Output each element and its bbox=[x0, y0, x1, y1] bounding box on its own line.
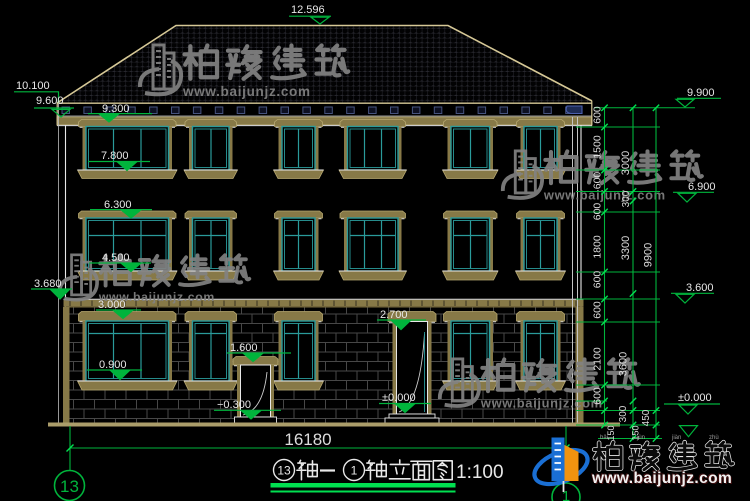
svg-text:−0.300: −0.300 bbox=[217, 399, 251, 411]
svg-text:12.596: 12.596 bbox=[291, 4, 325, 16]
svg-text:600: 600 bbox=[592, 301, 604, 319]
svg-text:www.baijunjz.com: www.baijunjz.com bbox=[591, 470, 732, 487]
svg-text:3.600: 3.600 bbox=[686, 282, 714, 294]
svg-text:bǎi: bǎi bbox=[600, 435, 608, 441]
svg-text:zhù: zhù bbox=[709, 435, 719, 441]
svg-text:2100: 2100 bbox=[592, 347, 604, 371]
svg-text:1800: 1800 bbox=[592, 235, 604, 259]
svg-text:300: 300 bbox=[621, 190, 632, 207]
svg-text:±0.000: ±0.000 bbox=[382, 392, 416, 404]
svg-text:1500: 1500 bbox=[592, 135, 604, 159]
svg-text:3000: 3000 bbox=[620, 151, 632, 175]
svg-text:600: 600 bbox=[592, 271, 604, 289]
svg-text:1:100: 1:100 bbox=[456, 462, 504, 483]
svg-text:1.600: 1.600 bbox=[230, 342, 258, 354]
svg-text:3300: 3300 bbox=[620, 236, 632, 260]
svg-text:jiàn: jiàn bbox=[671, 435, 681, 441]
svg-text:13: 13 bbox=[60, 477, 79, 496]
svg-text:3.680: 3.680 bbox=[34, 278, 62, 290]
svg-text:jùn: jùn bbox=[636, 435, 645, 441]
svg-text:4.500: 4.500 bbox=[102, 252, 130, 264]
svg-text:13: 13 bbox=[277, 464, 291, 478]
svg-text:10.100: 10.100 bbox=[16, 80, 50, 92]
svg-text:±0.000: ±0.000 bbox=[678, 392, 712, 404]
svg-text:2.700: 2.700 bbox=[380, 309, 408, 321]
svg-text:0.900: 0.900 bbox=[99, 359, 127, 371]
svg-text:600: 600 bbox=[592, 203, 604, 221]
svg-text:9900: 9900 bbox=[643, 243, 655, 267]
svg-text:6.900: 6.900 bbox=[688, 181, 716, 193]
svg-text:600: 600 bbox=[592, 106, 604, 124]
svg-text:1: 1 bbox=[351, 464, 358, 478]
svg-text:3600: 3600 bbox=[618, 352, 630, 376]
svg-text:600: 600 bbox=[592, 387, 604, 405]
svg-text:600: 600 bbox=[592, 172, 604, 190]
svg-text:16180: 16180 bbox=[284, 430, 331, 449]
svg-text:450: 450 bbox=[641, 409, 652, 426]
svg-text:9.600: 9.600 bbox=[36, 95, 64, 107]
svg-text:9.900: 9.900 bbox=[687, 87, 715, 99]
svg-text:7.800: 7.800 bbox=[101, 150, 129, 162]
svg-text:3.000: 3.000 bbox=[98, 299, 126, 311]
svg-text:300: 300 bbox=[618, 405, 629, 422]
